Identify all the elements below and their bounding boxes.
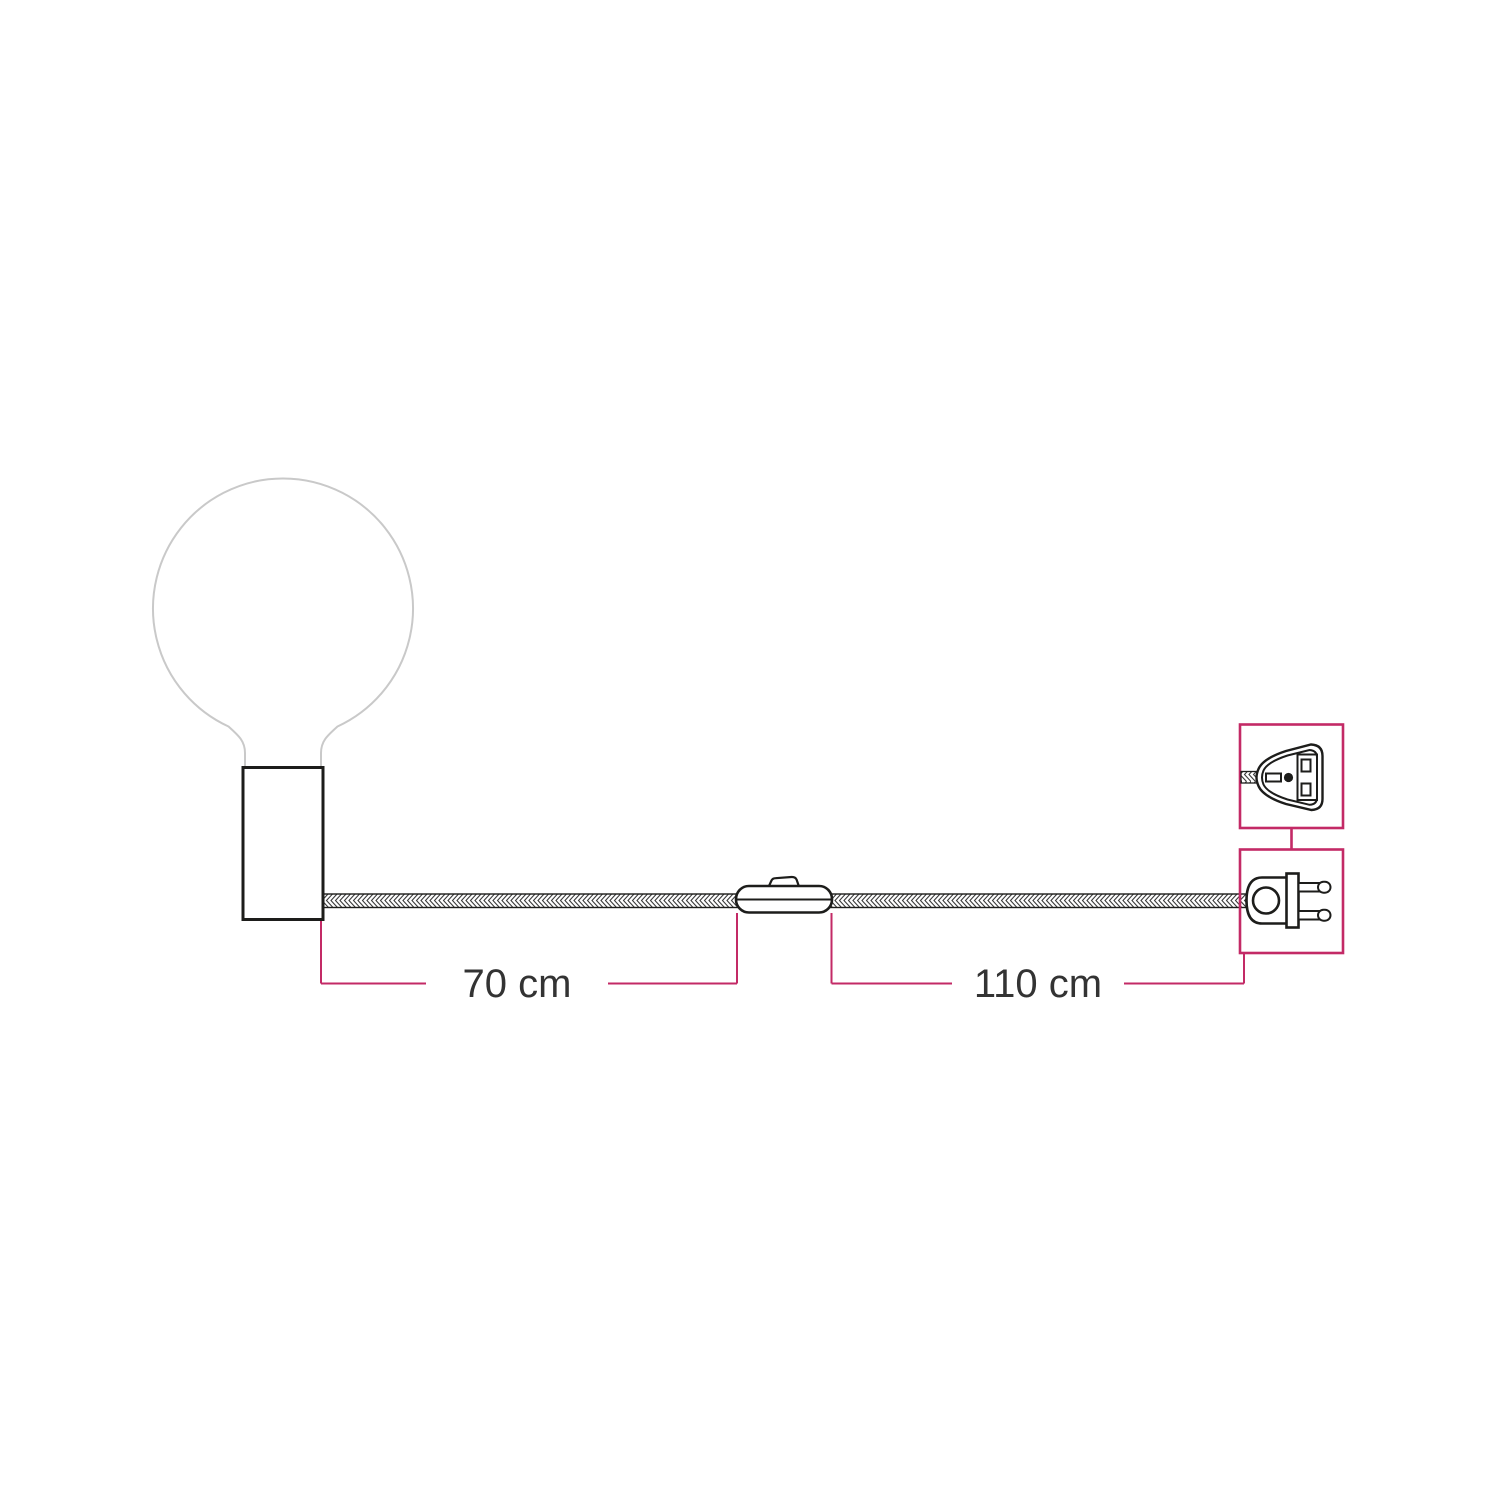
lamp-holder: [243, 768, 323, 920]
europlug-face-plate: [1287, 874, 1299, 928]
diagram-svg: 70 cm 110 cm: [0, 0, 1500, 1500]
europlug-bottom-pin-tip: [1318, 910, 1331, 921]
cable-left-segment: [322, 894, 738, 908]
cable-right-segment: [830, 894, 1253, 908]
dimension-70cm-label: 70 cm: [463, 962, 572, 1006]
uk-plug-center-dot: [1284, 773, 1293, 782]
bulb-glass-outline: [153, 478, 413, 768]
dimension-110cm-label: 110 cm: [974, 962, 1102, 1006]
textile-cable-right-run: [830, 894, 1253, 908]
europlug-icon: [1247, 874, 1331, 928]
uk-plug-icon: [1241, 745, 1323, 811]
inline-switch: [736, 877, 832, 913]
switch-button: [769, 877, 799, 886]
europlug-cable-grip-ring: [1253, 888, 1279, 914]
lamp-holder-body: [243, 768, 323, 920]
globe-light-bulb: [153, 478, 413, 768]
lamp-dimension-diagram: 70 cm 110 cm: [0, 0, 1500, 1500]
textile-cable-left-run: [322, 894, 738, 908]
europlug-top-pin-tip: [1318, 882, 1331, 893]
